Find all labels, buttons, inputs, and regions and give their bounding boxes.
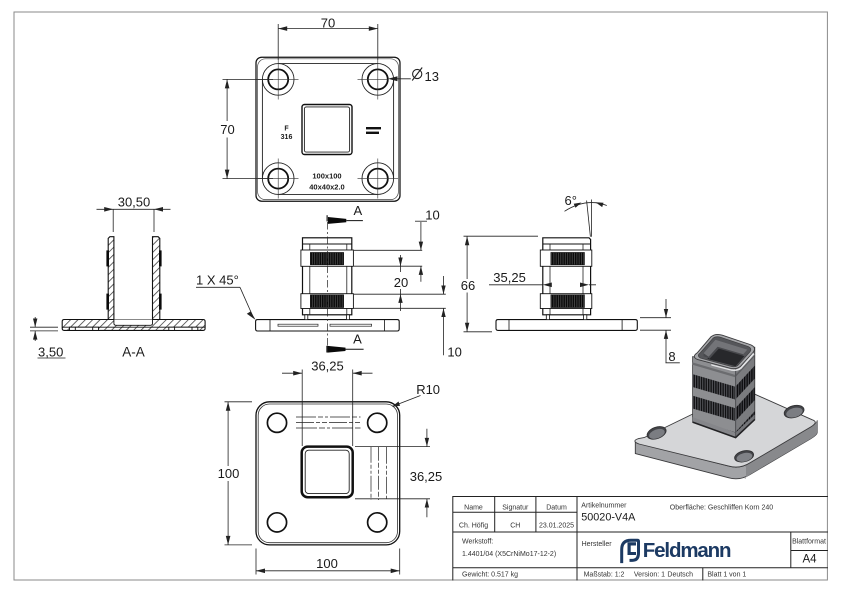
svg-text:50020-V4A: 50020-V4A [581, 511, 636, 523]
svg-text:100x100: 100x100 [312, 172, 341, 181]
svg-text:Werkstoff:: Werkstoff: [462, 539, 493, 546]
svg-text:3,50: 3,50 [38, 345, 63, 360]
svg-text:Name: Name [464, 505, 483, 512]
svg-text:30,50: 30,50 [118, 195, 151, 210]
svg-text:Artikelnummer: Artikelnummer [581, 503, 627, 510]
svg-text:100: 100 [218, 466, 240, 481]
svg-text:13: 13 [425, 69, 439, 84]
svg-text:A4: A4 [802, 554, 817, 566]
svg-text:Signatur: Signatur [502, 505, 529, 512]
svg-text:36,25: 36,25 [311, 359, 344, 374]
svg-text:316: 316 [281, 134, 293, 141]
svg-text:8: 8 [668, 349, 675, 364]
svg-text:Datum: Datum [546, 505, 567, 512]
svg-text:Feldmann: Feldmann [643, 539, 731, 562]
svg-text:20: 20 [394, 275, 408, 290]
svg-text:100: 100 [316, 556, 338, 571]
svg-text:40x40x2.0: 40x40x2.0 [309, 183, 344, 192]
svg-text:1.4401/04 (X5CrNiMo17-12-2): 1.4401/04 (X5CrNiMo17-12-2) [462, 551, 556, 558]
svg-text:70: 70 [321, 16, 335, 31]
svg-text:Deutsch: Deutsch [667, 572, 693, 579]
svg-text:Maßstab: 1:2: Maßstab: 1:2 [584, 572, 625, 579]
svg-text:CH: CH [510, 523, 520, 530]
svg-text:A: A [353, 332, 362, 347]
svg-text:Gewicht: 0.517 kg: Gewicht: 0.517 kg [462, 572, 518, 579]
svg-text:A: A [353, 203, 362, 218]
svg-text:6°: 6° [565, 193, 577, 208]
svg-text:Ch. Höfig: Ch. Höfig [459, 523, 488, 530]
svg-text:A-A: A-A [122, 345, 145, 360]
svg-text:23.01.2025: 23.01.2025 [539, 523, 574, 530]
svg-text:1 X 45°: 1 X 45° [196, 273, 239, 288]
svg-text:66: 66 [461, 278, 475, 293]
svg-text:R10: R10 [416, 382, 440, 397]
svg-text:F: F [284, 126, 289, 133]
svg-text:35,25: 35,25 [493, 270, 526, 285]
svg-text:Hersteller: Hersteller [582, 541, 613, 548]
svg-text:Oberfläche: Geschliffen Korn: Oberfläche: Geschliffen Korn 240 [670, 505, 773, 512]
svg-text:10: 10 [447, 345, 461, 360]
svg-text:Version: 1: Version: 1 [634, 572, 665, 579]
svg-text:70: 70 [220, 122, 234, 137]
svg-text:Blatt 1 von 1: Blatt 1 von 1 [707, 572, 746, 579]
svg-text:10: 10 [425, 208, 439, 223]
svg-text:36,25: 36,25 [410, 469, 443, 484]
svg-text:Blattformat: Blattformat [792, 539, 826, 546]
